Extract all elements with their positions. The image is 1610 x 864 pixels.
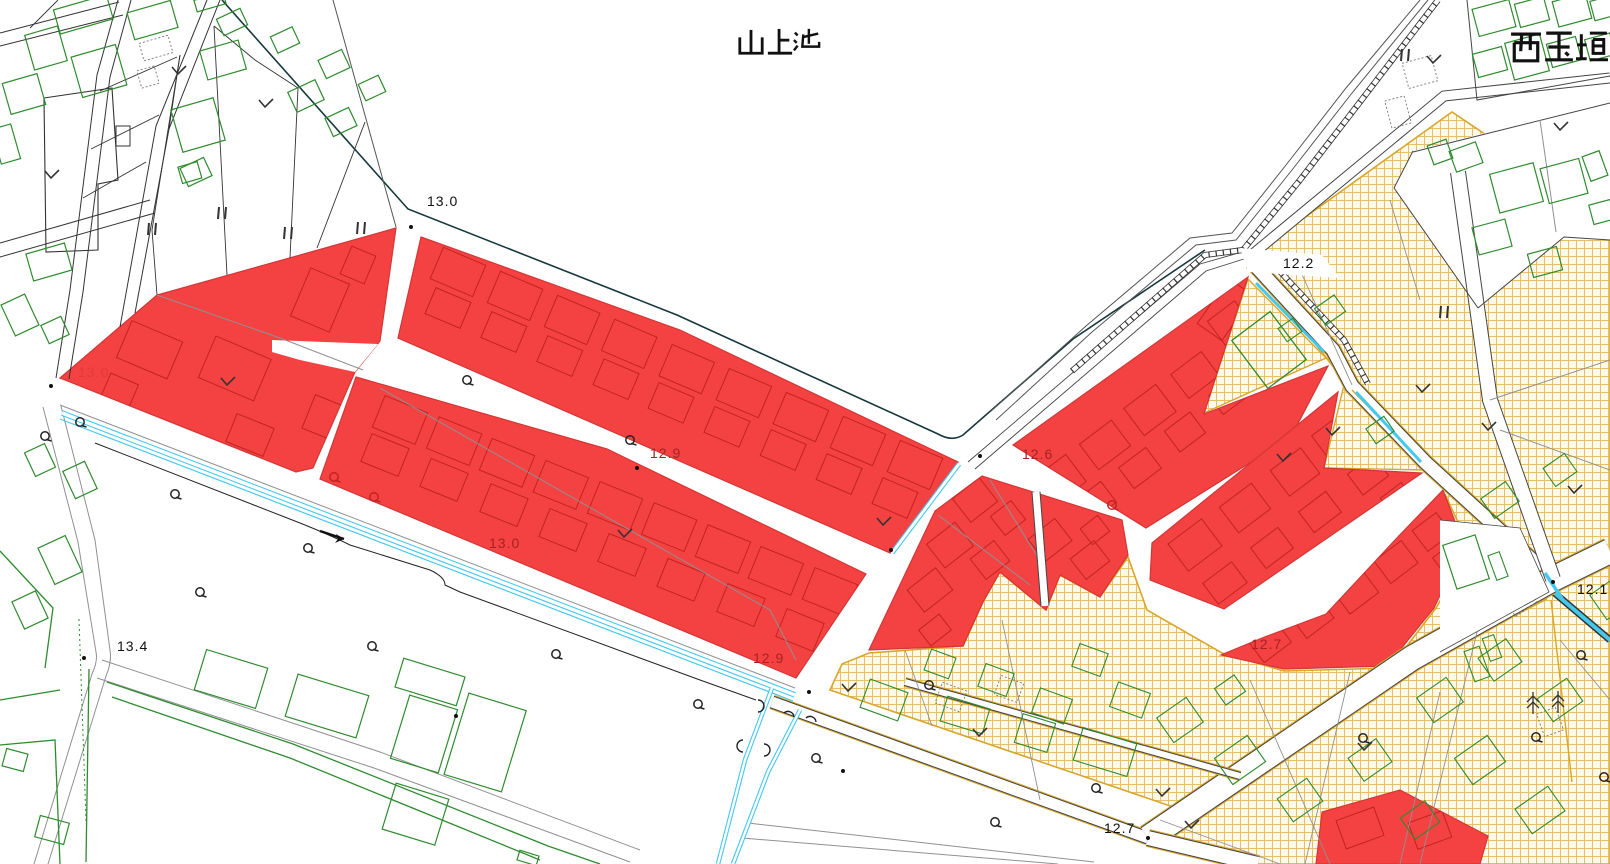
- svg-text:13.0: 13.0: [78, 364, 109, 380]
- svg-text:12.1: 12.1: [1577, 581, 1608, 597]
- svg-text:12.2: 12.2: [1283, 255, 1314, 271]
- svg-text:12.9: 12.9: [650, 445, 681, 461]
- svg-text:12.7: 12.7: [1104, 820, 1135, 836]
- svg-text:12.9: 12.9: [753, 650, 784, 666]
- svg-text:13.0: 13.0: [489, 535, 520, 551]
- svg-text:12.6: 12.6: [1022, 446, 1053, 462]
- svg-text:13.0: 13.0: [427, 193, 458, 209]
- svg-text:12.7: 12.7: [1251, 636, 1282, 652]
- svg-text:13.4: 13.4: [117, 638, 148, 654]
